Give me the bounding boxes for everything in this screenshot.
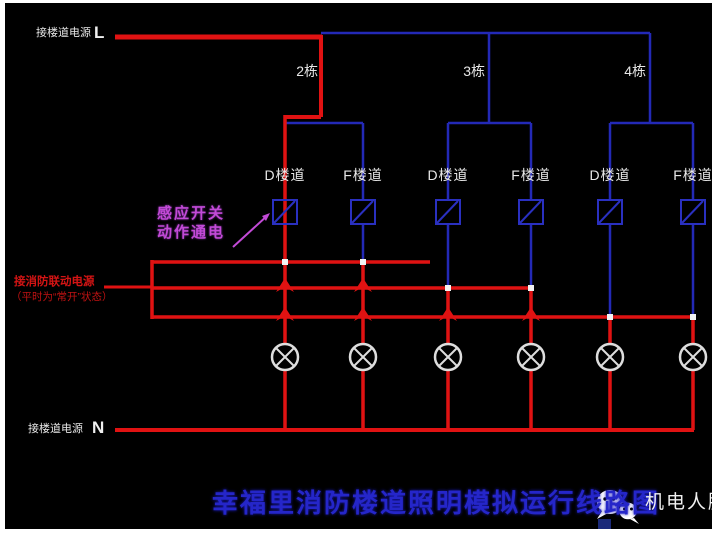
live-phase-label: L (94, 24, 104, 43)
top-supply-label: 接楼道电源 (36, 27, 91, 39)
lamp-d2 (272, 344, 298, 370)
building-2-label: 2栋 (288, 64, 318, 79)
lamp-f2 (350, 344, 376, 370)
bottom-supply-label: 接楼道电源 (28, 423, 83, 435)
fire-supply-line1: 接消防联动电源 (14, 276, 95, 289)
corridor-f4-label: F楼道 (661, 168, 712, 183)
lamp-d4 (597, 344, 623, 370)
building-3-label: 3栋 (455, 64, 485, 79)
lamp-f4 (680, 344, 706, 370)
lamps (272, 344, 706, 370)
corridor-d3-label: D楼道 (416, 168, 480, 183)
sensor-note-line1: 感应开关 (157, 206, 225, 223)
neutral-phase-label: N (92, 419, 104, 438)
leader-line (233, 213, 270, 247)
corridor-f2-label: F楼道 (331, 168, 395, 183)
lamp-d3 (435, 344, 461, 370)
lamp-f3 (518, 344, 544, 370)
flow-arrows (276, 278, 540, 321)
building-4-label: 4栋 (616, 64, 646, 79)
corridor-d2-label: D楼道 (253, 168, 317, 183)
diagram-canvas: 接楼道电源 L 2栋 3栋 4栋 D楼道 F楼道 D楼道 F楼道 D楼道 F楼道… (5, 3, 712, 529)
fire-supply-line2: （平时为“常开”状态） (11, 292, 113, 304)
diagram-title: 幸福里消防楼道照明模拟运行线路图 (212, 489, 660, 518)
corridor-f3-label: F楼道 (499, 168, 563, 183)
switch-boxes (273, 200, 705, 224)
corner-mark (598, 519, 611, 529)
corridor-d4-label: D楼道 (578, 168, 642, 183)
sensor-note-line2: 动作通电 (157, 225, 225, 242)
wiring-diagram (5, 3, 712, 529)
watermark-text: 机电人脉 (645, 493, 712, 514)
